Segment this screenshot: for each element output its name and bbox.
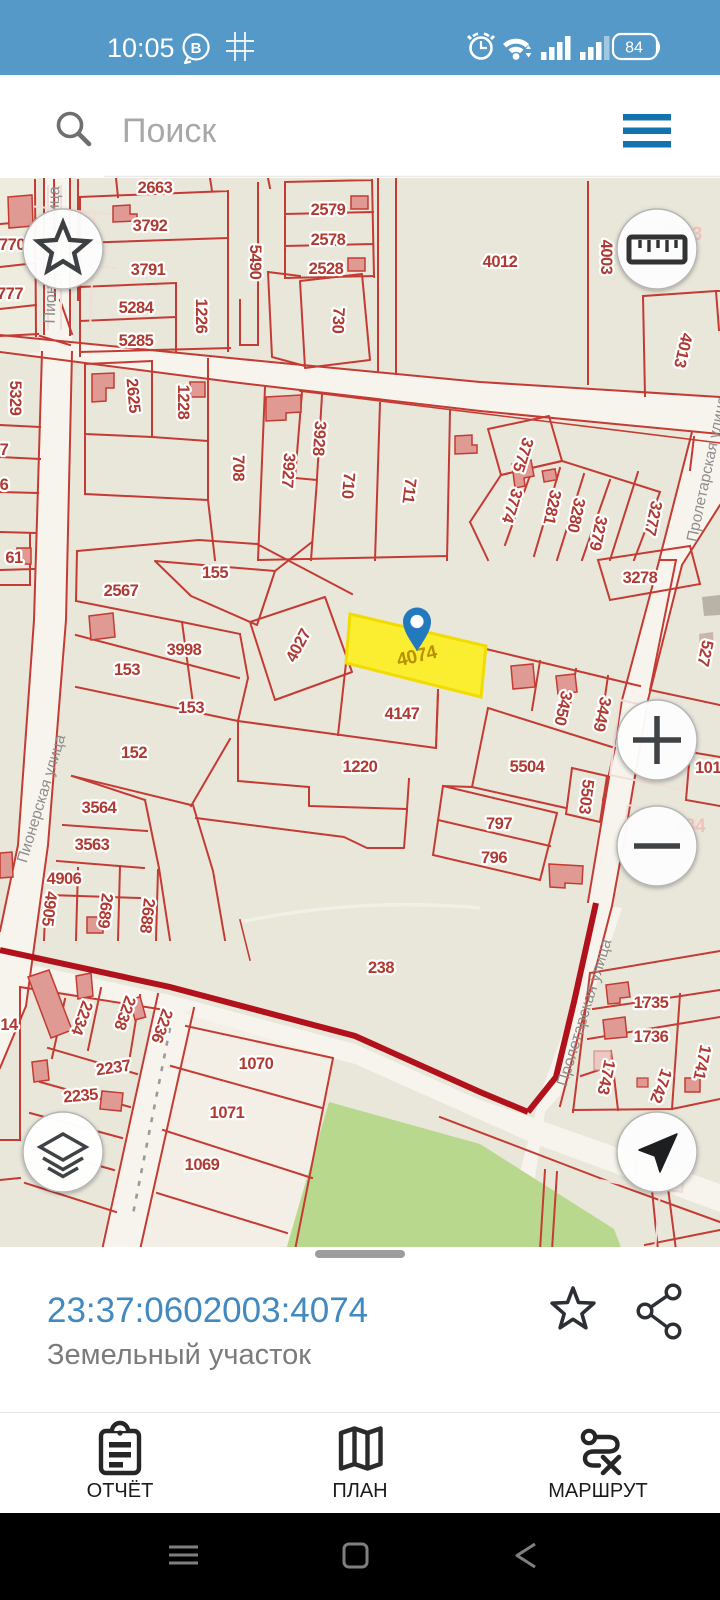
svg-text:1226: 1226: [192, 299, 210, 334]
svg-text:23:37:0602003:4074: 23:37:0602003:4074: [47, 1291, 368, 1330]
svg-text:3792: 3792: [133, 217, 168, 235]
svg-text:2235: 2235: [62, 1086, 98, 1107]
svg-text:ОТЧЁТ: ОТЧЁТ: [87, 1480, 154, 1502]
svg-text:3928: 3928: [309, 420, 329, 456]
svg-text:2579: 2579: [311, 201, 346, 219]
svg-text:797: 797: [486, 815, 512, 833]
svg-text:61: 61: [5, 549, 23, 567]
svg-text:5490: 5490: [246, 245, 264, 280]
svg-text:1071: 1071: [210, 1104, 245, 1122]
svg-text:3563: 3563: [75, 836, 110, 854]
svg-text:1736: 1736: [634, 1028, 669, 1046]
svg-text:238: 238: [368, 959, 394, 977]
svg-text:14: 14: [0, 1016, 19, 1034]
svg-text:1735: 1735: [634, 994, 669, 1012]
svg-text:4012: 4012: [483, 253, 518, 271]
svg-text:101: 101: [695, 759, 720, 777]
svg-text:B: B: [191, 40, 202, 57]
svg-text:1228: 1228: [174, 385, 192, 420]
svg-text:Поиск: Поиск: [122, 112, 217, 150]
svg-text:10:05: 10:05: [107, 33, 175, 63]
svg-text:3564: 3564: [82, 799, 118, 817]
svg-text:3998: 3998: [167, 641, 202, 659]
svg-text:3278: 3278: [623, 569, 658, 587]
svg-text:4147: 4147: [385, 705, 420, 723]
svg-text:5285: 5285: [119, 332, 154, 350]
svg-text:6: 6: [0, 476, 9, 494]
svg-text:3927: 3927: [278, 452, 298, 488]
svg-text:5284: 5284: [119, 299, 155, 317]
svg-text:2578: 2578: [311, 231, 346, 249]
svg-text:Земельный участок: Земельный участок: [47, 1339, 311, 1371]
svg-text:МАРШРУТ: МАРШРУТ: [548, 1480, 648, 1502]
svg-text:5329: 5329: [6, 381, 24, 416]
svg-text:708: 708: [229, 455, 247, 481]
svg-text:4003: 4003: [597, 240, 615, 275]
svg-text:730: 730: [328, 307, 347, 334]
svg-text:1220: 1220: [343, 758, 378, 776]
svg-text:2528: 2528: [309, 260, 344, 278]
svg-text:711: 711: [398, 477, 419, 504]
svg-text:153: 153: [114, 661, 140, 679]
svg-text:ПЛАН: ПЛАН: [332, 1480, 387, 1502]
svg-text:155: 155: [202, 564, 228, 582]
svg-text:2663: 2663: [138, 179, 173, 197]
svg-text:2567: 2567: [104, 582, 139, 600]
svg-text:5504: 5504: [510, 758, 546, 776]
svg-text:3791: 3791: [131, 261, 166, 279]
svg-text:796: 796: [481, 849, 507, 867]
svg-text:777: 777: [0, 285, 23, 303]
svg-text:2625: 2625: [123, 377, 144, 413]
svg-text:153: 153: [178, 699, 204, 717]
svg-text:4906: 4906: [47, 870, 82, 888]
svg-text:84: 84: [625, 40, 643, 57]
svg-text:710: 710: [338, 472, 358, 500]
svg-text:1070: 1070: [239, 1055, 274, 1073]
svg-text:1069: 1069: [185, 1156, 220, 1174]
svg-text:7: 7: [0, 441, 9, 459]
svg-text:152: 152: [121, 744, 147, 762]
svg-text:770: 770: [0, 236, 25, 254]
